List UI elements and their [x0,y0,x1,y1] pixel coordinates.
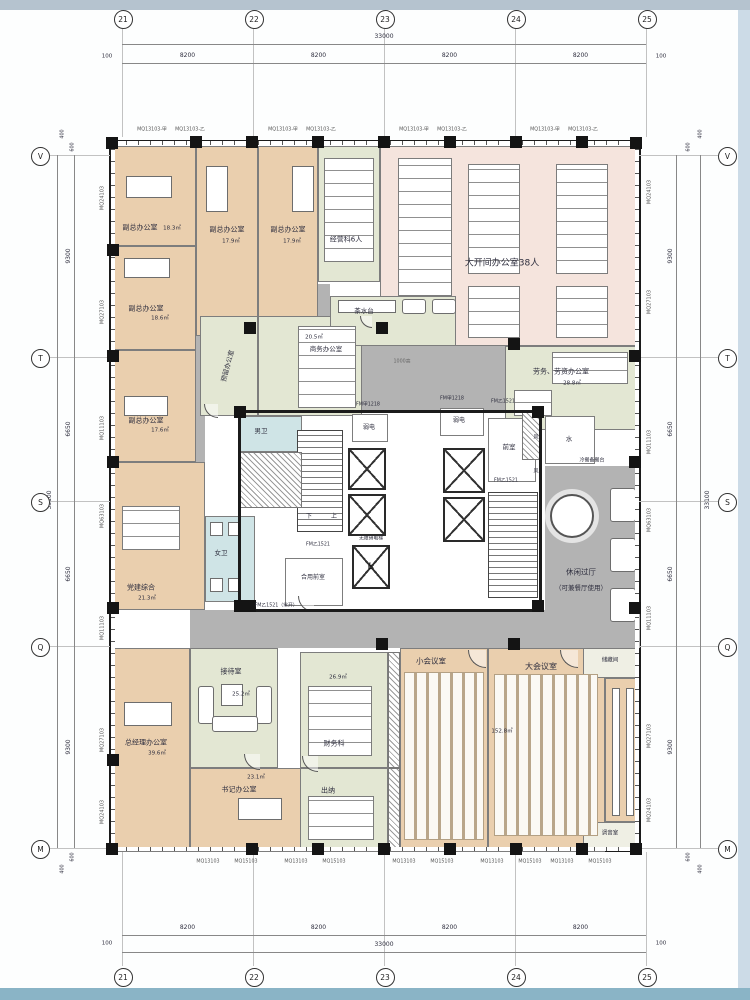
room-label-chucang: 储藏间 [602,658,619,664]
grid-bubble-row-right: Q [718,638,737,657]
column [246,136,258,148]
curtainwall-left: MQ11103 [101,416,106,440]
sofa [402,299,426,314]
curtainwall-bottom: MQ13103 [550,861,573,866]
sofa [212,716,258,732]
room-label-jiedai: 接待室 [221,669,242,676]
dim-bay-top: 8200 [573,53,588,59]
desk [292,166,314,212]
column [190,136,202,148]
desk-block [556,164,608,274]
grid-bubble-col-bottom: 21 [114,968,133,987]
room-label-vice2: 副总办公室 [210,227,245,234]
grid-bubble-col-top: 24 [507,10,526,29]
curtainwall-right: MQ24103 [648,798,653,822]
label-0: 400 [62,129,67,138]
room-area-dahui: 152.8㎡ [491,729,512,735]
grid-bubble-col-bottom: 25 [638,968,657,987]
curtainwall-right: MQ11103 [648,606,653,630]
room-shared-antechamber [285,558,343,606]
column [444,136,456,148]
curtainwall-left: MQ24103 [101,800,106,824]
room-area-dangjian: 21.3㎡ [138,596,156,602]
curtainwall-top: MQ13103-乙 [306,129,336,134]
room-label-dangjian: 党建综合 [127,585,155,592]
grid-leader [122,852,123,966]
curtainwall-right: MQ63103 [648,508,653,532]
grid-leader [384,852,385,966]
sofa [256,686,272,724]
column [106,137,118,149]
annotation-feng: 风 [533,436,538,441]
column [508,638,520,650]
annotation-nvwei: 女卫 [215,550,228,557]
column [576,136,588,148]
room-area-shuji: 23.1㎡ [247,775,265,781]
curtainwall-top: MQ13103-甲 [137,129,167,134]
column [234,406,246,418]
dim-row-right: 6650 [668,566,674,581]
dim-line [122,935,646,936]
column [246,843,258,855]
annotation-feng: 风 [533,470,538,475]
annotation-fm_yi: FM乙1521 [491,401,515,406]
grid-leader [50,357,110,358]
grid-bubble-row-left: M [31,840,50,859]
round-table [550,494,594,538]
column [508,338,520,350]
column [378,843,390,855]
column [107,602,119,614]
elevator [443,497,485,542]
sofa [610,538,636,572]
annotation-fm_jia: FM甲1218 [356,404,380,409]
elevator [443,448,485,493]
annotation-chashuitai: 茶水台 [354,308,374,315]
dim-row-left: 6650 [66,566,72,581]
column [312,136,324,148]
grid-leader [253,852,254,966]
room-label-xiaohui: 小会议室 [416,657,446,665]
curtainwall-right: MQ11103 [648,430,653,454]
grid-leader [515,852,516,966]
column [510,136,522,148]
room-label-vice3: 副总办公室 [271,227,306,234]
annotation-heyong: 合用前室 [301,575,325,581]
label-1: 600 [72,852,77,861]
desk-block [398,158,452,296]
wheelchair-icon: ♿ [367,562,375,572]
annotation-fm_jia: FM甲1218 [440,398,464,403]
curtainwall-bottom: MQ15103 [430,861,453,866]
dim-bay-bottom: 8200 [573,925,588,931]
curtainwall-bottom: MQ13103 [392,861,415,866]
dim-bay-top: 8200 [311,53,326,59]
room-area-vice3: 17.9㎡ [283,239,301,245]
desk [126,176,172,198]
annotation-lengcan: 冷餐备餐台 [579,459,604,464]
grid-bubble-col-bottom: 22 [245,968,264,987]
desk-block [122,506,180,550]
desk [228,578,241,592]
elevator [348,448,386,490]
column [510,843,522,855]
desk-block [556,286,608,338]
shaft-hatch [240,452,302,508]
column [444,843,456,855]
curtainwall-top: MQ13103-甲 [399,129,429,134]
desk-block [468,164,520,274]
grid-leader [638,357,718,358]
annotation-h1000: 1000高 [393,361,410,366]
dim-line [122,44,646,45]
annotation-ruodian: 弱电 [363,425,375,431]
annotation-xiuxian1: 休闲过厅 [566,568,596,576]
label-edge_h: 100 [656,941,667,947]
grid-bubble-row-left: Q [31,638,50,657]
dim-line [122,952,646,953]
column [630,843,642,855]
column [107,456,119,468]
curtainwall-bottom: MQ15103 [518,861,541,866]
grid-bubble-row-right: M [718,840,737,859]
annotation-shui: 水 [566,436,573,443]
page-top-strip [0,0,750,10]
grid-bubble-row-left: S [31,493,50,512]
column [234,600,246,612]
desk [626,688,634,816]
room-label-laowu: 劳务、劳资办公室 [533,369,589,376]
grid-bubble-col-bottom: 24 [507,968,526,987]
label-edge_h: 100 [102,54,113,60]
page-right-strip [738,0,750,1000]
desk [238,798,282,820]
column [629,350,641,362]
dim-total-width-top: 33000 [374,34,393,40]
column [107,244,119,256]
annotation-qianshi: 前室 [503,444,516,451]
curtainwall-bottom: MQ13103 [480,861,503,866]
column [376,322,388,334]
curtainwall-left: MQ11103 [101,616,106,640]
room-area-jiedai: 25.2㎡ [232,692,250,698]
sofa [610,488,636,522]
desk [612,688,620,816]
desk [210,578,223,592]
label-0: 400 [700,129,705,138]
column [576,843,588,855]
grid-bubble-row-right: V [718,147,737,166]
column [629,456,641,468]
dim-line [700,155,701,848]
desk-block [324,158,374,262]
curtainwall-bottom: MQ15103 [588,861,611,866]
desk-block [468,286,520,338]
curtainwall-top: MQ13103-乙 [437,129,467,134]
desk-block [308,796,374,840]
grid-bubble-col-top: 25 [638,10,657,29]
curtainwall-left: MQ27103 [101,300,106,324]
grid-leader [50,501,110,502]
sofa [432,299,456,314]
desk [206,166,228,212]
grid-bubble-col-top: 23 [376,10,395,29]
room-label-vice4: 副总办公室 [129,306,164,313]
column [630,137,642,149]
shaft-hatch [388,768,400,852]
column [532,406,544,418]
elevator [348,494,386,536]
window-band-bottom [114,847,636,851]
label-1: 600 [688,142,693,151]
column [376,638,388,650]
desk [210,522,223,536]
room-label-tiaoyin: 调音室 [602,831,619,837]
curtainwall-top: MQ13103-乙 [175,129,205,134]
dim-bay-top: 8200 [180,53,195,59]
grid-bubble-row-left: V [31,147,50,166]
grid-leader [646,28,647,137]
curtainwall-left: MQ27103 [101,728,106,752]
accessible-elevator: ♿ [352,545,390,589]
dim-line [676,155,677,848]
dim-line [57,155,58,848]
chair-rows [494,674,598,836]
room-label-jingyingke: 经营科6人 [330,237,362,244]
room-label-shangwu: 商务办公室 [310,346,343,353]
room-label-vice1: 副总办公室 [123,225,158,232]
dim-line [74,155,75,848]
room-men-toilet [240,416,302,452]
column [532,600,544,612]
dim-bay-top: 8200 [442,53,457,59]
column [378,136,390,148]
dim-bay-bottom: 8200 [311,925,326,931]
dim-row-right: 6650 [668,421,674,436]
dim-row-right: 9300 [668,739,674,754]
desk [124,396,168,416]
grid-leader [638,848,718,849]
room-label-vice5: 副总办公室 [129,418,164,425]
annotation-down: 下 [306,514,312,520]
room-area-shangwu: 20.5㎡ [305,335,323,341]
room-area-vice1: 18.3㎡ [163,226,181,232]
dim-line [122,63,646,64]
column [244,322,256,334]
label-1: 600 [688,852,693,861]
page-bottom-strip [0,988,750,1000]
annotation-xiuxian2: （可兼餐厅使用） [555,585,607,592]
label-0: 400 [62,864,67,873]
dim-row-left: 9300 [66,739,72,754]
column [629,602,641,614]
curtainwall-left: MQ24103 [101,186,106,210]
dim-total-height-right: 33100 [705,490,711,509]
grid-bubble-row-left: T [31,349,50,368]
room-area-vice5: 17.6㎡ [151,428,169,434]
grid-bubble-row-right: S [718,493,737,512]
curtainwall-top: MQ13103-乙 [568,129,598,134]
column [107,754,119,766]
column [107,350,119,362]
dim-total-width-bottom: 33000 [374,942,393,948]
curtainwall-left: MQ63103 [101,504,106,528]
room-area-vice4: 18.6㎡ [151,316,169,322]
annotation-fm_yi_open: FM乙1521（常开） [254,605,297,610]
grid-leader [50,848,110,849]
room-area-caiwu: 26.9㎡ [329,675,347,681]
column [106,843,118,855]
curtainwall-bottom: MQ15103 [322,861,345,866]
desk [228,522,241,536]
curtainwall-top: MQ13103-甲 [268,129,298,134]
desk [124,702,172,726]
grid-bubble-row-right: T [718,349,737,368]
grid-leader [50,155,110,156]
label-0: 400 [700,864,705,873]
room-label-dahui: 大会议室 [525,663,557,671]
chair-rows [404,672,484,840]
dim-row-left: 6650 [66,421,72,436]
annotation-fm_yi: FM乙1521 [306,544,330,549]
room-area-laowu: 28.8㎡ [563,381,581,387]
grid-leader [50,646,110,647]
curtainwall-bottom: MQ15103 [234,861,257,866]
grid-leader [638,155,718,156]
grid-bubble-col-bottom: 23 [376,968,395,987]
dim-bay-bottom: 8200 [180,925,195,931]
label-1: 600 [72,142,77,151]
annotation-wuzhangai: 无障碍电梯 [359,538,383,543]
curtainwall-bottom: MQ13103 [196,861,219,866]
floor-plan-sheet: 副总办公室18.3㎡副总办公室17.9㎡副总办公室17.9㎡经营科6人大开间办公… [0,0,750,1000]
window-band-right [635,146,639,846]
column [312,843,324,855]
grid-bubble-col-top: 21 [114,10,133,29]
room-area-vice2: 17.9㎡ [222,239,240,245]
room-label-openoffice: 大开间办公室38人 [465,260,539,269]
curtainwall-bottom: MQ13103 [284,861,307,866]
dim-bay-bottom: 8200 [442,925,457,931]
grid-leader [638,646,718,647]
room-label-chuna: 出纳 [321,788,335,795]
dim-row-right: 9300 [668,248,674,263]
annotation-fm_yi: FM乙1521 [494,480,518,485]
room-label-shuji: 书记办公室 [222,787,257,794]
label-edge_h: 100 [656,54,667,60]
curtainwall-right: MQ24103 [648,180,653,204]
room-area-zongjingli: 39.6㎡ [148,751,166,757]
grid-bubble-col-top: 22 [245,10,264,29]
dim-row-left: 9300 [66,248,72,263]
stairs [488,492,538,598]
curtainwall-right: MQ27103 [648,724,653,748]
shaft-hatch [388,652,400,768]
annotation-nanwei: 男卫 [255,428,268,435]
room-label-caiwu: 财务科 [324,741,345,748]
desk [124,258,170,278]
room-label-zongjingli: 总经理办公室 [125,740,167,747]
curtainwall-top: MQ13103-甲 [530,129,560,134]
annotation-up: 上 [331,514,337,520]
curtainwall-right: MQ27103 [648,290,653,314]
grid-leader [646,852,647,966]
annotation-ruodian: 弱电 [453,418,465,424]
label-edge_h: 100 [102,941,113,947]
